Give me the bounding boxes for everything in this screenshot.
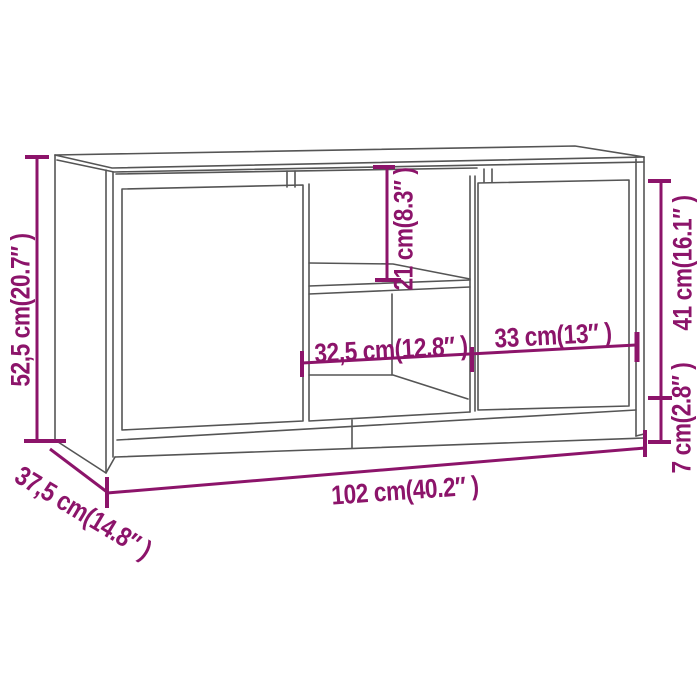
top-panel	[55, 146, 644, 172]
right-side-panel	[636, 157, 644, 436]
left-door	[122, 171, 303, 430]
shelf-opening-height-label: 21 cm(8.3″ )	[389, 167, 420, 290]
door-height-label: 41 cm(16.1″ )	[668, 195, 699, 330]
right-door	[478, 169, 629, 410]
left-side-panel	[55, 155, 115, 473]
right-door-width-label: 33 cm(13″ )	[494, 317, 613, 354]
base-height-label: 7 cm(2.8″ )	[667, 363, 698, 474]
dimension-diagram: 52,5 cm(20.7″ ) 37,5 cm(14.8″ ) 102 cm(4…	[0, 0, 700, 700]
height-dimension-label: 52,5 cm(20.7″ )	[6, 233, 37, 386]
